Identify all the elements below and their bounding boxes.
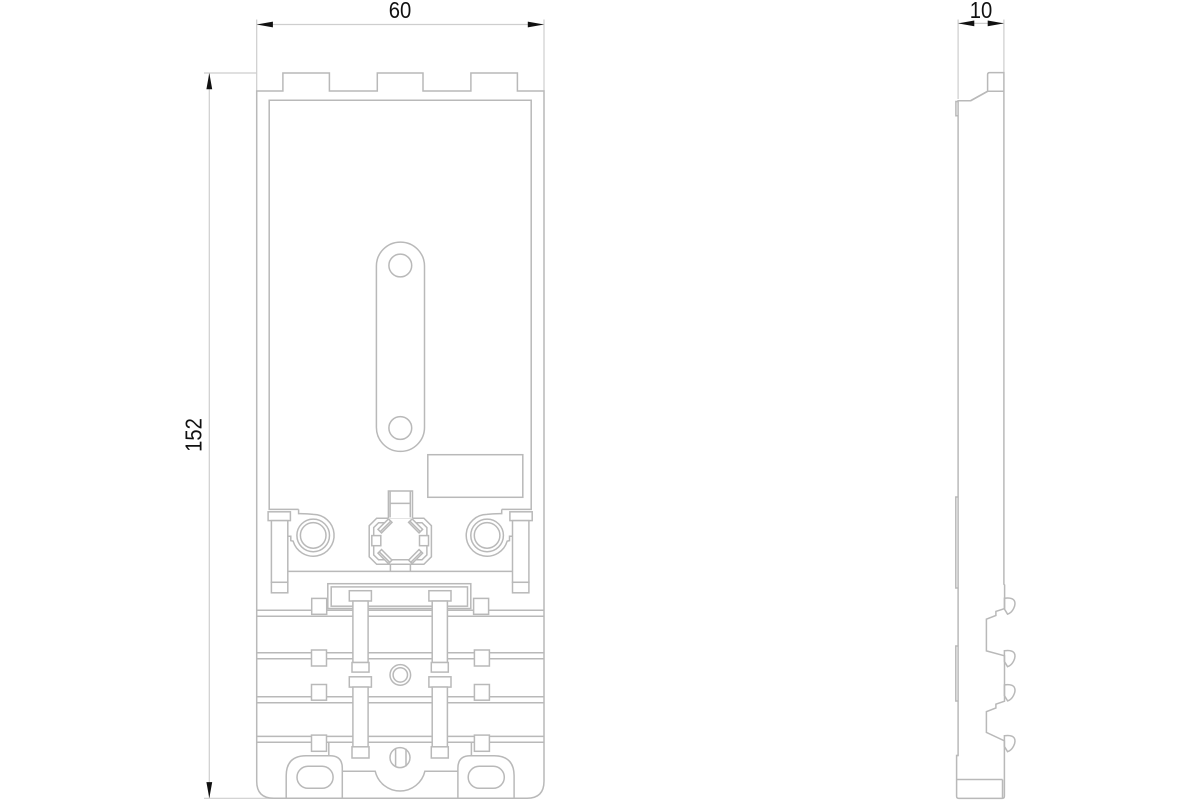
svg-text:152: 152 xyxy=(180,418,207,452)
svg-text:60: 60 xyxy=(389,0,412,23)
svg-text:10: 10 xyxy=(970,0,993,23)
